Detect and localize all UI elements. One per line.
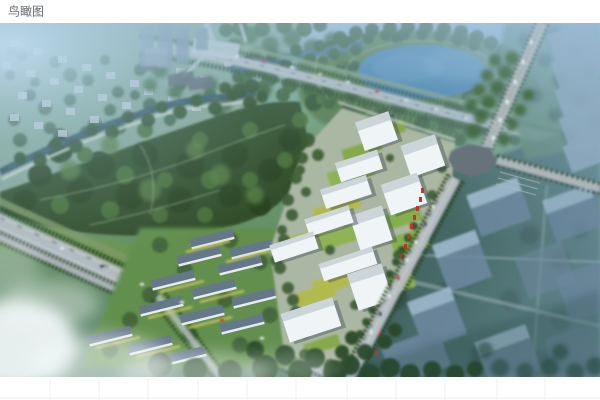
svg-text:鸟瞰图: 鸟瞰图 [8,4,44,19]
